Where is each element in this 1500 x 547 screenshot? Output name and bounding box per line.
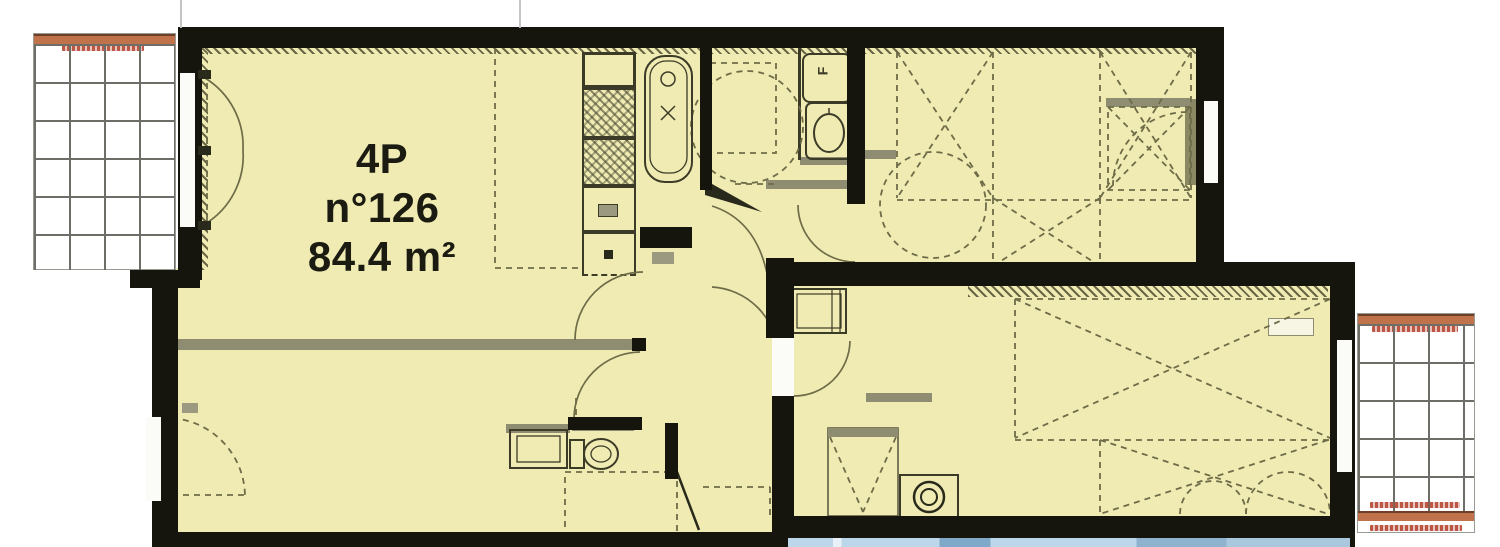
- wardrobe1-grid: [897, 52, 1191, 200]
- unit-type: 4P: [262, 134, 502, 183]
- balcony-left: [33, 33, 176, 270]
- wall-unit2-bottom: [772, 516, 1355, 540]
- unit2-sink-outer: [914, 482, 944, 512]
- glazing-strip: [788, 538, 1350, 547]
- window-left-lower: [146, 417, 161, 501]
- wc-dash-box: [565, 472, 677, 536]
- dashed-guides: [172, 48, 1330, 536]
- wall-step: [130, 270, 200, 288]
- wall-wc-top: [568, 417, 642, 430]
- unit-label: 4P n°126 84.4 m²: [262, 134, 502, 281]
- hall-dash: [703, 487, 770, 516]
- wall-left-lower: [152, 272, 178, 547]
- window-bedroom1: [1204, 101, 1218, 183]
- toilet-bowl-inner: [591, 446, 611, 462]
- washbasin-wc-inner: [517, 436, 560, 462]
- wall-stub-hall: [640, 227, 692, 248]
- balcony-left-bar: [34, 34, 175, 44]
- bathtub-inner: [650, 61, 687, 173]
- hinge-bottom: [198, 221, 211, 230]
- washbasin-bath-bowl: [814, 114, 844, 152]
- balcony-right-bar-bottom: [1358, 511, 1474, 521]
- hall-door-arc-a: [575, 272, 643, 340]
- balcony-right-label-bottom: [1370, 525, 1462, 531]
- wall-main-bottom: [152, 532, 778, 547]
- wardrobe2-scallop-b: [1246, 472, 1330, 514]
- unit2-closet-inner: [797, 294, 841, 328]
- window-left-upper: [180, 73, 195, 227]
- bathtub-tap-icon: [661, 106, 675, 120]
- unit2-closet-doors: [832, 289, 840, 333]
- toilet-tank: [570, 440, 584, 468]
- wardrobe2-grid: [1015, 299, 1330, 440]
- water-heater-v: [830, 437, 896, 512]
- balcony-right-bar-top: [1358, 314, 1474, 324]
- french-door-arc-bottom: [205, 150, 243, 224]
- shower-dash-box: [710, 63, 776, 153]
- water-heater-box: [828, 428, 898, 516]
- bedroom1-door-arc: [798, 205, 855, 262]
- door-gap-unit2: [772, 338, 794, 396]
- property-tick-left: [180, 0, 182, 28]
- wall-wc-right: [665, 423, 678, 479]
- wardrobe1-cross-a: [897, 52, 993, 198]
- window-unit2: [1337, 340, 1352, 472]
- toilet-bowl: [584, 439, 618, 469]
- balcony-left-grating: [34, 44, 175, 270]
- unit2-closet: [792, 289, 846, 333]
- property-tick-mid: [519, 0, 521, 28]
- unit-area: 84.4 m²: [262, 232, 502, 281]
- wardrobe1-lower-box: [993, 198, 1100, 266]
- bathtub: [645, 56, 692, 182]
- french-door-arc-top: [205, 78, 243, 150]
- turning-circle-bedroom1: [880, 152, 986, 258]
- wardrobe1-lower-cross: [993, 198, 1100, 266]
- water-heater-top: [828, 428, 898, 437]
- unit2-sink-inner: [921, 489, 937, 505]
- bathtub-drain-icon: [661, 72, 675, 86]
- wc-door-leaf: [677, 472, 699, 530]
- balcony-right-grating: [1358, 324, 1474, 511]
- hinge-top: [198, 70, 211, 79]
- wardrobe2-cross-b: [1100, 440, 1328, 514]
- wall-bedroom1-left: [847, 44, 865, 204]
- balcony-right-label-mid: [1370, 502, 1460, 508]
- wall-bathroom-left: [700, 44, 712, 190]
- window-swing-arc: [172, 418, 245, 497]
- unit2-entry-arc: [794, 341, 850, 396]
- hall-door-arc-c: [574, 352, 640, 419]
- wall-stub-vertical: [766, 258, 794, 338]
- wardrobe2-scallop-a: [1180, 481, 1246, 514]
- floor-plan: F: [0, 0, 1500, 547]
- wall-unit2-top: [772, 262, 1355, 286]
- wardrobe2-cross-a: [1015, 299, 1330, 438]
- hinge-middle: [198, 146, 211, 155]
- unit-number: n°126: [262, 183, 502, 232]
- balcony-right: [1357, 313, 1475, 533]
